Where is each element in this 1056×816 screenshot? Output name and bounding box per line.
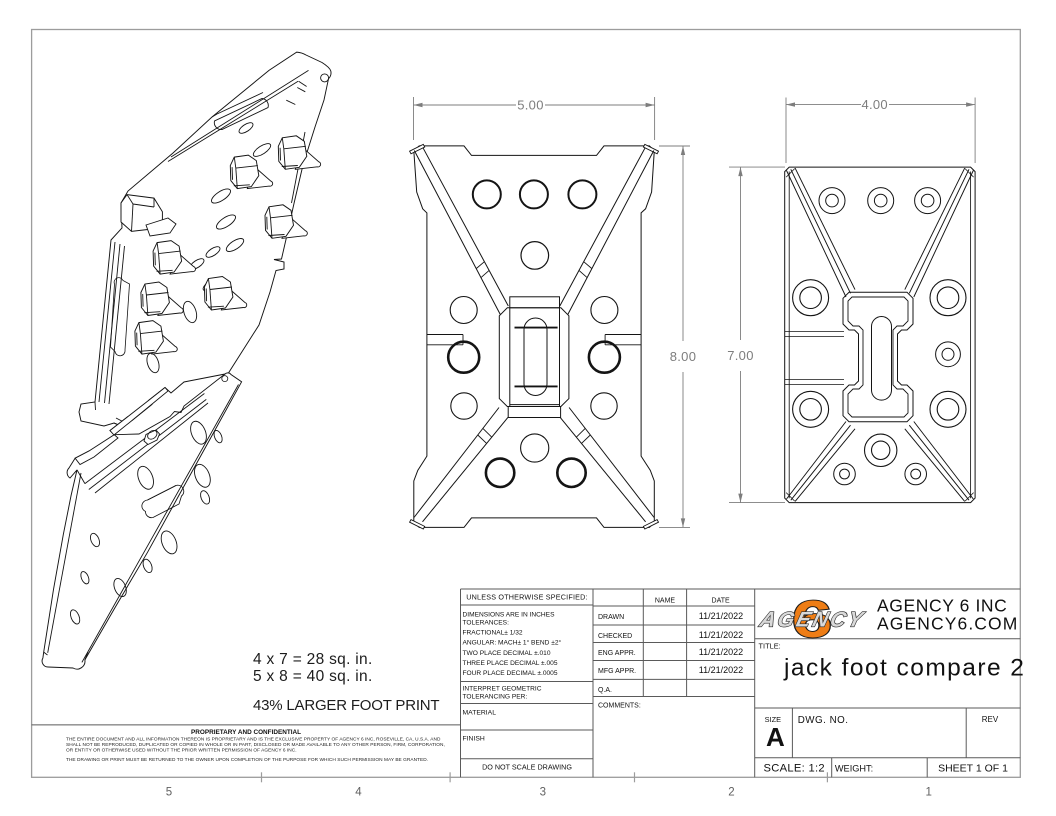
svg-text:ENG APPR.: ENG APPR. [598, 650, 636, 657]
svg-text:ANGULAR: MACH± 1° BEND ±2°: ANGULAR: MACH± 1° BEND ±2° [463, 639, 562, 647]
svg-text:MATERIAL: MATERIAL [463, 710, 497, 717]
svg-text:TWO PLACE DECIMAL ±.010: TWO PLACE DECIMAL ±.010 [463, 650, 551, 657]
svg-text:DRAWN: DRAWN [598, 614, 624, 621]
svg-text:1: 1 [925, 787, 931, 799]
svg-text:4: 4 [355, 787, 362, 799]
svg-text:SCALE: 1:2: SCALE: 1:2 [764, 763, 825, 775]
svg-text:FRACTIONAL± 1/32: FRACTIONAL± 1/32 [463, 630, 523, 637]
svg-text:3: 3 [540, 787, 546, 799]
svg-text:11/21/2022: 11/21/2022 [699, 647, 743, 657]
svg-text:TOLERANCES:: TOLERANCES: [463, 620, 510, 627]
svg-text:11/21/2022: 11/21/2022 [699, 665, 743, 675]
svg-text:8.00: 8.00 [670, 349, 697, 364]
svg-text:SHEET 1 OF 1: SHEET 1 OF 1 [938, 763, 1008, 775]
svg-text:FOUR PLACE DECIMAL ±.0005: FOUR PLACE DECIMAL ±.0005 [463, 670, 558, 677]
svg-text:5: 5 [166, 787, 172, 799]
svg-text:COMMENTS:: COMMENTS: [598, 702, 641, 709]
svg-text:11/21/2022: 11/21/2022 [699, 611, 743, 621]
svg-text:A: A [766, 722, 785, 752]
svg-text:AGENCY 6 INC: AGENCY 6 INC [877, 596, 1007, 616]
svg-text:OR ENTITY OR OTHERWISE USED WI: OR ENTITY OR OTHERWISE USED WITHOUT THE … [66, 748, 297, 754]
svg-text:11/21/2022: 11/21/2022 [699, 630, 743, 640]
svg-text:5.00: 5.00 [517, 97, 544, 112]
svg-text:CHECKED: CHECKED [598, 633, 632, 640]
svg-text:DIMENSIONS ARE IN INCHES: DIMENSIONS ARE IN INCHES [463, 612, 556, 619]
svg-text:DATE: DATE [712, 598, 730, 605]
svg-text:FINISH: FINISH [463, 736, 485, 743]
svg-text:DO NOT SCALE DRAWING: DO NOT SCALE DRAWING [482, 763, 572, 772]
svg-text:THREE PLACE DECIMAL ±.005: THREE PLACE DECIMAL ±.005 [463, 660, 558, 667]
svg-text:jack foot compare 2: jack foot compare 2 [783, 655, 1025, 682]
svg-text:Q.A.: Q.A. [598, 687, 612, 694]
svg-text:THE DRAWING OR PRINT MUST BE R: THE DRAWING OR PRINT MUST BE RETURNED TO… [66, 757, 428, 763]
svg-text:SHALL NOT BE REPRODUCED, DUPLI: SHALL NOT BE REPRODUCED, DUPLICATED OR C… [66, 742, 445, 748]
svg-text:TOLERANCING PER:: TOLERANCING PER: [463, 694, 528, 701]
svg-text:INTERPRET GEOMETRIC: INTERPRET GEOMETRIC [463, 686, 542, 693]
svg-text:PROPRIETARY AND CONFIDENTIAL: PROPRIETARY AND CONFIDENTIAL [191, 729, 301, 736]
svg-text:4 x 7 = 28 sq. in.: 4 x 7 = 28 sq. in. [253, 651, 373, 668]
svg-text:THE ENTIRE DOCUMENT AND ALL IN: THE ENTIRE DOCUMENT AND ALL INFORMATION … [66, 737, 441, 743]
svg-text:DWG. NO.: DWG. NO. [798, 715, 849, 726]
svg-text:43% LARGER FOOT PRINT: 43% LARGER FOOT PRINT [253, 697, 439, 714]
svg-text:AGENCY6.COM: AGENCY6.COM [877, 614, 1018, 634]
svg-text:4.00: 4.00 [861, 97, 888, 112]
svg-text:5 x 8 = 40 sq. in.: 5 x 8 = 40 sq. in. [253, 668, 373, 685]
svg-text:NAME: NAME [655, 598, 676, 605]
svg-text:7.00: 7.00 [727, 348, 754, 363]
svg-text:WEIGHT:: WEIGHT: [835, 764, 873, 774]
svg-text:AGENCY: AGENCY [756, 608, 867, 632]
svg-text:UNLESS OTHERWISE SPECIFIED:: UNLESS OTHERWISE SPECIFIED: [466, 593, 588, 602]
svg-text:MFG APPR.: MFG APPR. [598, 668, 636, 675]
svg-text:REV: REV [982, 715, 999, 724]
svg-text:TITLE:: TITLE: [759, 642, 781, 651]
svg-text:2: 2 [728, 787, 734, 799]
